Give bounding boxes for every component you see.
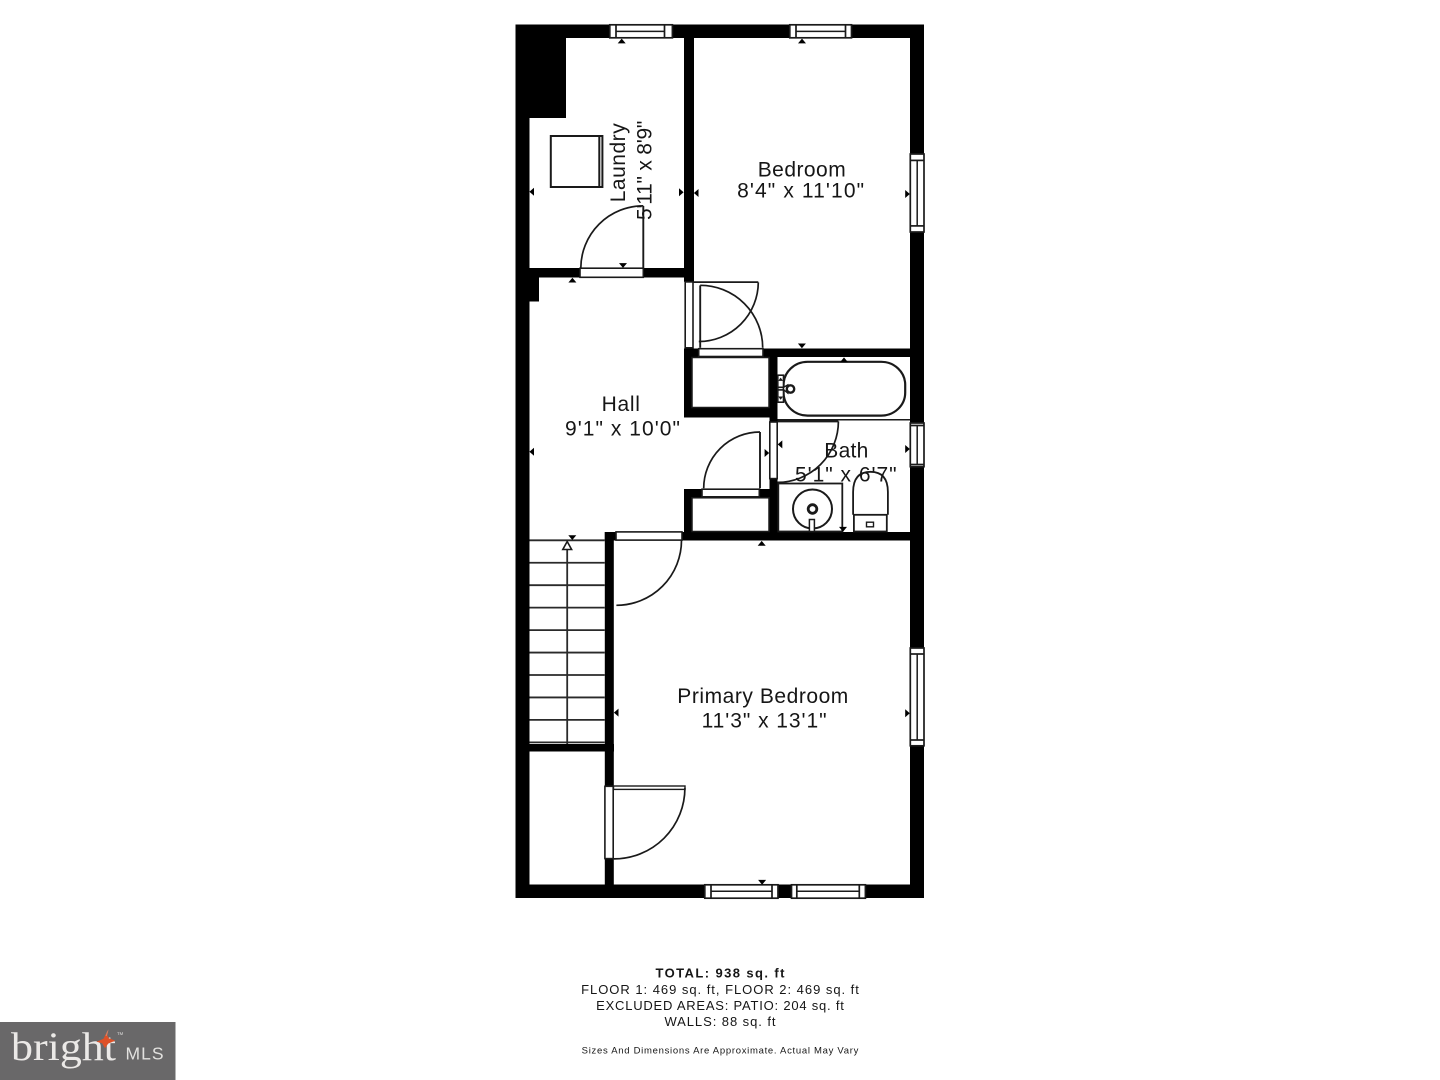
svg-text:Hall: Hall [602,393,640,416]
svg-text:WALLS: 88 sq. ft: WALLS: 88 sq. ft [664,1014,775,1029]
svg-text:Laundry: Laundry [607,123,630,203]
svg-text:FLOOR 1: 469 sq. ft, FLOOR 2:: FLOOR 1: 469 sq. ft, FLOOR 2: 469 sq. ft [581,982,859,997]
svg-text:™: ™ [117,1032,124,1039]
svg-text:bright: bright [11,1024,116,1069]
svg-text:Bath: Bath [824,440,868,463]
svg-text:MLS: MLS [126,1043,165,1063]
svg-text:EXCLUDED AREAS: PATIO: 204 sq.: EXCLUDED AREAS: PATIO: 204 sq. ft [596,998,844,1013]
svg-text:5'11" x 8'9": 5'11" x 8'9" [634,121,657,220]
svg-text:Sizes And Dimensions Are Appro: Sizes And Dimensions Are Approximate. Ac… [582,1045,859,1056]
svg-text:11'3" x 13'1": 11'3" x 13'1" [702,709,827,732]
svg-text:Bedroom: Bedroom [758,159,846,182]
svg-text:8'4" x 11'10": 8'4" x 11'10" [737,180,864,203]
svg-text:Primary Bedroom: Primary Bedroom [677,685,848,708]
svg-text:5'1" x 6'7": 5'1" x 6'7" [795,464,897,487]
svg-text:9'1" x 10'0": 9'1" x 10'0" [565,418,680,441]
